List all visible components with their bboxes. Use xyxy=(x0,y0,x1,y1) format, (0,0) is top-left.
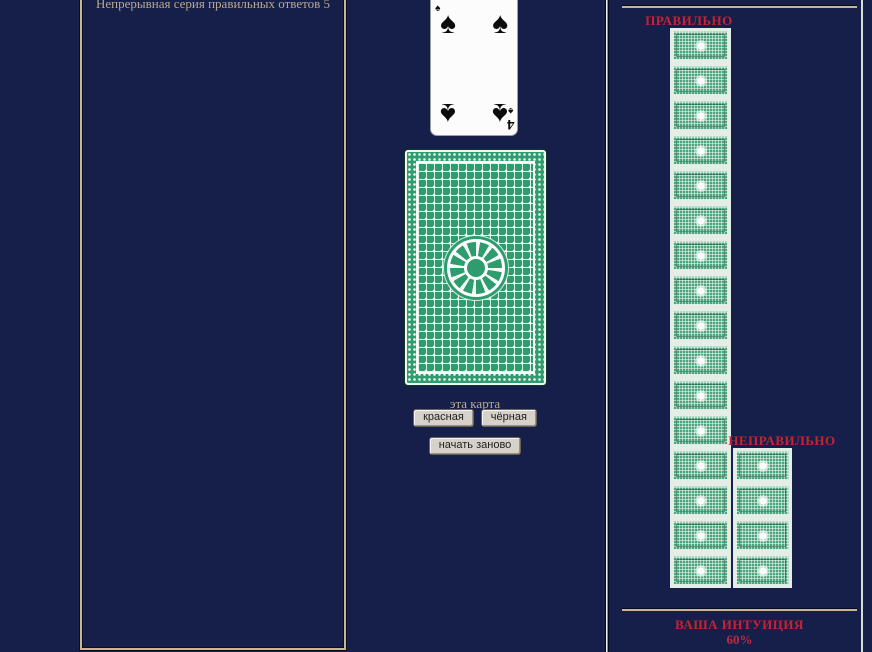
mini-card-back xyxy=(670,98,731,133)
mini-card-back xyxy=(670,343,731,378)
card-back-medallion-icon xyxy=(694,179,708,193)
bottom-rule xyxy=(622,609,857,611)
guess-red-button[interactable]: красная xyxy=(413,409,474,427)
vertical-divider xyxy=(605,0,609,652)
mini-card-back xyxy=(670,483,731,518)
card-back-medallion-icon xyxy=(694,109,708,123)
card-back-medallion-icon xyxy=(756,529,770,543)
guess-buttons-row: красная чёрная xyxy=(346,409,604,427)
right-edge-line xyxy=(861,0,863,652)
card-back-medallion-icon xyxy=(694,354,708,368)
card-back-medallion-icon xyxy=(447,239,505,297)
top-rule xyxy=(622,6,857,8)
stats-panel: Непрерывная серия правильных ответов 5 xyxy=(80,0,346,650)
guess-black-button[interactable]: чёрная xyxy=(481,409,537,427)
intuition-percentage: 60% xyxy=(622,632,857,648)
intuition-label: ВАША ИНТУИЦИЯ xyxy=(622,617,857,633)
spade-pip-icon: ♠ xyxy=(492,9,508,39)
mini-card-back xyxy=(670,308,731,343)
streak-text: Непрерывная серия правильных ответов 5 xyxy=(96,0,330,11)
card-back-medallion-icon xyxy=(694,389,708,403)
mini-card-back xyxy=(670,448,731,483)
revealed-card-4-of-spades: 4 ♠ 4 ♠ ♠ ♠ ♠ ♠ xyxy=(430,0,518,136)
mini-card-back xyxy=(733,483,792,518)
card-back-medallion-icon xyxy=(694,249,708,263)
mini-card-back xyxy=(670,168,731,203)
card-back-medallion-icon xyxy=(756,564,770,578)
mini-card-back xyxy=(670,203,731,238)
spade-icon: ♠ xyxy=(508,105,513,115)
card-back-medallion-icon xyxy=(694,214,708,228)
card-back-medallion-icon xyxy=(694,564,708,578)
mini-card-back xyxy=(670,238,731,273)
restart-button[interactable]: начать заново xyxy=(429,437,522,455)
restart-row: начать заново xyxy=(346,437,604,455)
card-back-medallion-icon xyxy=(694,494,708,508)
card-back-medallion-icon xyxy=(756,494,770,508)
mini-card-back xyxy=(670,378,731,413)
correct-label: ПРАВИЛЬНО xyxy=(629,13,749,29)
mini-card-back xyxy=(670,63,731,98)
mini-card-back xyxy=(670,518,731,553)
incorrect-card-stack xyxy=(733,448,792,588)
face-down-card-back xyxy=(405,150,546,385)
card-back-medallion-icon xyxy=(694,144,708,158)
card-back-medallion-icon xyxy=(694,319,708,333)
card-back-medallion-icon xyxy=(756,459,770,473)
card-back-medallion-icon xyxy=(694,39,708,53)
mini-card-back xyxy=(670,553,731,588)
spade-pip-icon: ♠ xyxy=(492,98,508,128)
mini-card-back xyxy=(670,273,731,308)
game-screen: Непрерывная серия правильных ответов 5 4… xyxy=(0,0,872,652)
mini-card-back xyxy=(733,448,792,483)
card-back-medallion-icon xyxy=(694,459,708,473)
correct-card-stack xyxy=(670,28,731,588)
mini-card-back xyxy=(733,553,792,588)
incorrect-label: НЕПРАВИЛЬНО xyxy=(702,433,862,449)
spade-pip-icon: ♠ xyxy=(440,98,456,128)
card-back-medallion-icon xyxy=(694,74,708,88)
spade-pip-icon: ♠ xyxy=(440,9,456,39)
card-back-medallion-icon xyxy=(694,529,708,543)
mini-card-back xyxy=(733,518,792,553)
mini-card-back xyxy=(670,28,731,63)
card-back-medallion-icon xyxy=(694,284,708,298)
mini-card-back xyxy=(670,133,731,168)
